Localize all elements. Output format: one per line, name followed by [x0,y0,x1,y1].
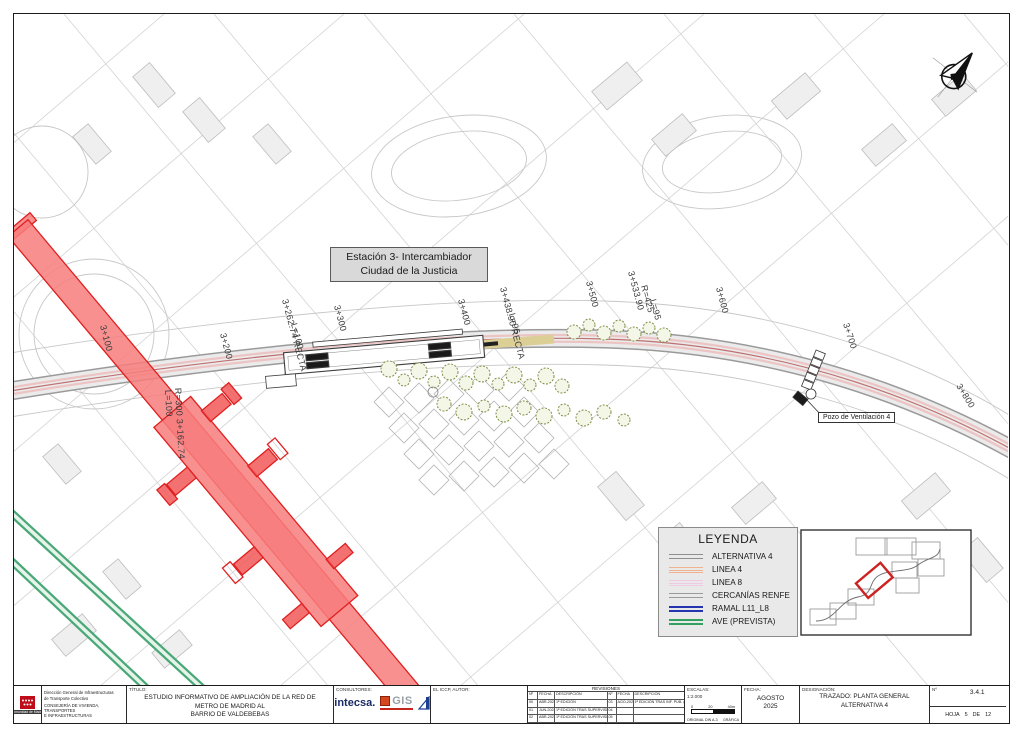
autor-label: EL ICCP, AUTOR: [431,686,527,693]
revisions-header: DESCRIPCIÓN [633,692,685,700]
revision-cell: ABR-2025 [537,715,554,723]
designation-cell: DESIGNACIÓN: TRAZADO: PLANTA GENERAL ALT… [799,686,929,723]
revision-cell: 02 [528,715,537,723]
legend-box: LEYENDA ALTERNATIVA 4 LINEA 4 LINEA 8 CE… [658,527,798,637]
escala-value: 1:2.000 [685,693,741,700]
chainage-label: L=100 [163,390,174,417]
drawing-number: 3.4.1 [948,686,1006,706]
revision-cell: AGO-2025 [616,700,633,708]
legend-item-ramal: RAMAL L11_L8 [669,604,787,613]
ramal-line-swatch [669,606,703,612]
revision-cell: 01 [528,708,537,716]
hoja-total: 12 [985,712,991,718]
station-label: Estación 3- Intercambiador Ciudad de la … [330,247,488,282]
revision-cell: 1ª EDICIÓN TRAS SUPERVISIÓN [554,708,607,716]
intecsa-logo: intecsa. [334,697,375,709]
revisions-cell: REVISIONES Nº FECHA DESCRIPCIÓN Nº FECHA… [527,686,684,723]
revision-cell: 04 [607,708,616,716]
fecha-month: AGOSTO [742,695,799,703]
legend-label: AVE (PREVISTA) [712,617,775,626]
revision-cell: 00 [528,700,537,708]
organism-cell: Dirección General de Infraestructuras de… [41,686,126,723]
ave-line-swatch [669,619,703,625]
org-line: de Transporte Colectivo [44,696,124,701]
legend-label: LINEA 8 [712,578,742,587]
cercanias-line-swatch [669,593,703,598]
linea-4-line-swatch [669,567,703,573]
revision-cell: 1ª EDICIÓN TRAS INF. PÚB. (IGA) [633,700,685,708]
gis-logo-text: GIS [392,695,412,707]
station-label-line2: Ciudad de la Justicia [333,265,485,279]
revision-cell [616,708,633,716]
alternativa-4-line-swatch [669,554,703,559]
org-line: E INFRAESTRUCTURAS [44,713,124,718]
linea-8-line-swatch [669,580,703,586]
revisions-header: FECHA [537,692,554,700]
project-title-line2: BARRIO DE VALDEBEBAS [133,711,327,720]
legend-item-alternativa-4: ALTERNATIVA 4 [669,552,787,561]
plan-map-area: 3+1003+2003+3003+4003+5003+6003+7003+800… [14,14,1009,685]
revisions-header: Nº [607,692,616,700]
consultores-label: CONSULTORES: [334,686,430,693]
sheet-number-cell: Nº 3.4.1 HOJA 5 DE 12 [929,686,1006,723]
comunidad-madrid-logo-cell: Comunidad de Madrid [14,686,41,723]
revision-cell: 05 [607,715,616,723]
legend-label: LINEA 4 [712,565,742,574]
revision-cell: JUN-2024 [537,708,554,716]
ave-lines [14,506,249,685]
org-line: CONSEJERÍA DE VIVIENDA, TRANSPORTES [44,703,124,714]
station-label-line1: Estación 3- Intercambiador [333,251,485,265]
chainage-label: 3+800 [954,382,977,410]
legend-label: RAMAL L11_L8 [712,604,769,613]
legend-item-ave: AVE (PREVISTA) [669,617,787,626]
legend-item-linea-8: LINEA 8 [669,578,787,587]
title-block: Comunidad de Madrid Dirección General de… [14,685,1009,723]
escala-label: ESCALAS: [685,686,741,693]
grafica-label: GRÁFICA [723,718,739,722]
revision-cell [616,715,633,723]
chainage-label: 3+700 [841,322,859,351]
project-title: ESTUDIO INFORMATIVO DE AMPLIACIÓN DE LA … [127,693,333,721]
revision-cell: 1ª EDICIÓN [554,700,607,708]
legend-label: ALTERNATIVA 4 [712,552,773,561]
designacion-line1: TRAZADO: PLANTA GENERAL [800,693,929,702]
fecha-year: 2025 [742,703,799,711]
num-label: Nº [930,686,948,706]
revision-cell: 1ª EDICIÓN TRAS SUPERVISIÓN [554,715,607,723]
hoja-number: 5 [965,712,968,718]
revisions-table: Nº FECHA DESCRIPCIÓN Nº FECHA DESCRIPCIÓ… [528,692,684,723]
station-underground-grid [374,371,569,495]
date-cell: FECHA: AGOSTO 2025 [741,686,799,723]
revisions-header: FECHA [616,692,633,700]
revision-cell [633,715,685,723]
scale-cell: ESCALAS: 1:2.000 0 20 40m ORIGINAL DIN A… [684,686,741,723]
ventilation-shaft-label: Pozo de Ventilación 4 [818,412,895,423]
hoja-label: HOJA [945,712,959,718]
revisions-header: DESCRIPCIÓN [554,692,607,700]
legend-label: CERCANÍAS RENFE [712,591,790,600]
revision-cell: 03 [607,700,616,708]
gis-logo-square-icon [380,696,390,706]
fecha-label: FECHA: [742,686,799,693]
gis-logo: GIS [380,695,412,710]
chainage-label: 3+300 [332,304,349,332]
legend-title: LEYENDA [659,532,797,546]
logo-caption: Comunidad de Madrid [14,710,41,714]
revision-cell: ABR-2024 [537,700,554,708]
chainage-label: 3+600 [714,286,731,314]
de-label: DE [973,712,981,718]
designacion-label: DESIGNACIÓN: [800,686,929,693]
keymap-inset [800,529,972,636]
designacion-line2: ALTERNATIVA 4 [800,702,929,711]
scale-bar [691,709,735,714]
consultants-cell: CONSULTORES: intecsa. GIS [333,686,430,723]
legend-item-linea-4: LINEA 4 [669,565,787,574]
titulo-label: TÍTULO: [127,686,333,693]
revision-cell [633,708,685,716]
project-title-line1: ESTUDIO INFORMATIVO DE AMPLIACIÓN DE LA … [133,694,327,711]
project-title-cell: TÍTULO: ESTUDIO INFORMATIVO DE AMPLIACIÓ… [126,686,333,723]
comunidad-madrid-flag-icon [20,696,35,709]
author-cell: EL ICCP, AUTOR: [430,686,527,723]
revisions-header: Nº [528,692,537,700]
drawing-sheet: 3+1003+2003+3003+4003+5003+6003+7003+800… [13,13,1010,724]
chainage-label: 3+500 [584,280,601,308]
original-din: ORIGINAL DIN A-3 [687,718,718,722]
legend-item-cercanias: CERCANÍAS RENFE [669,591,787,600]
third-consultant-logo-icon [418,696,430,710]
